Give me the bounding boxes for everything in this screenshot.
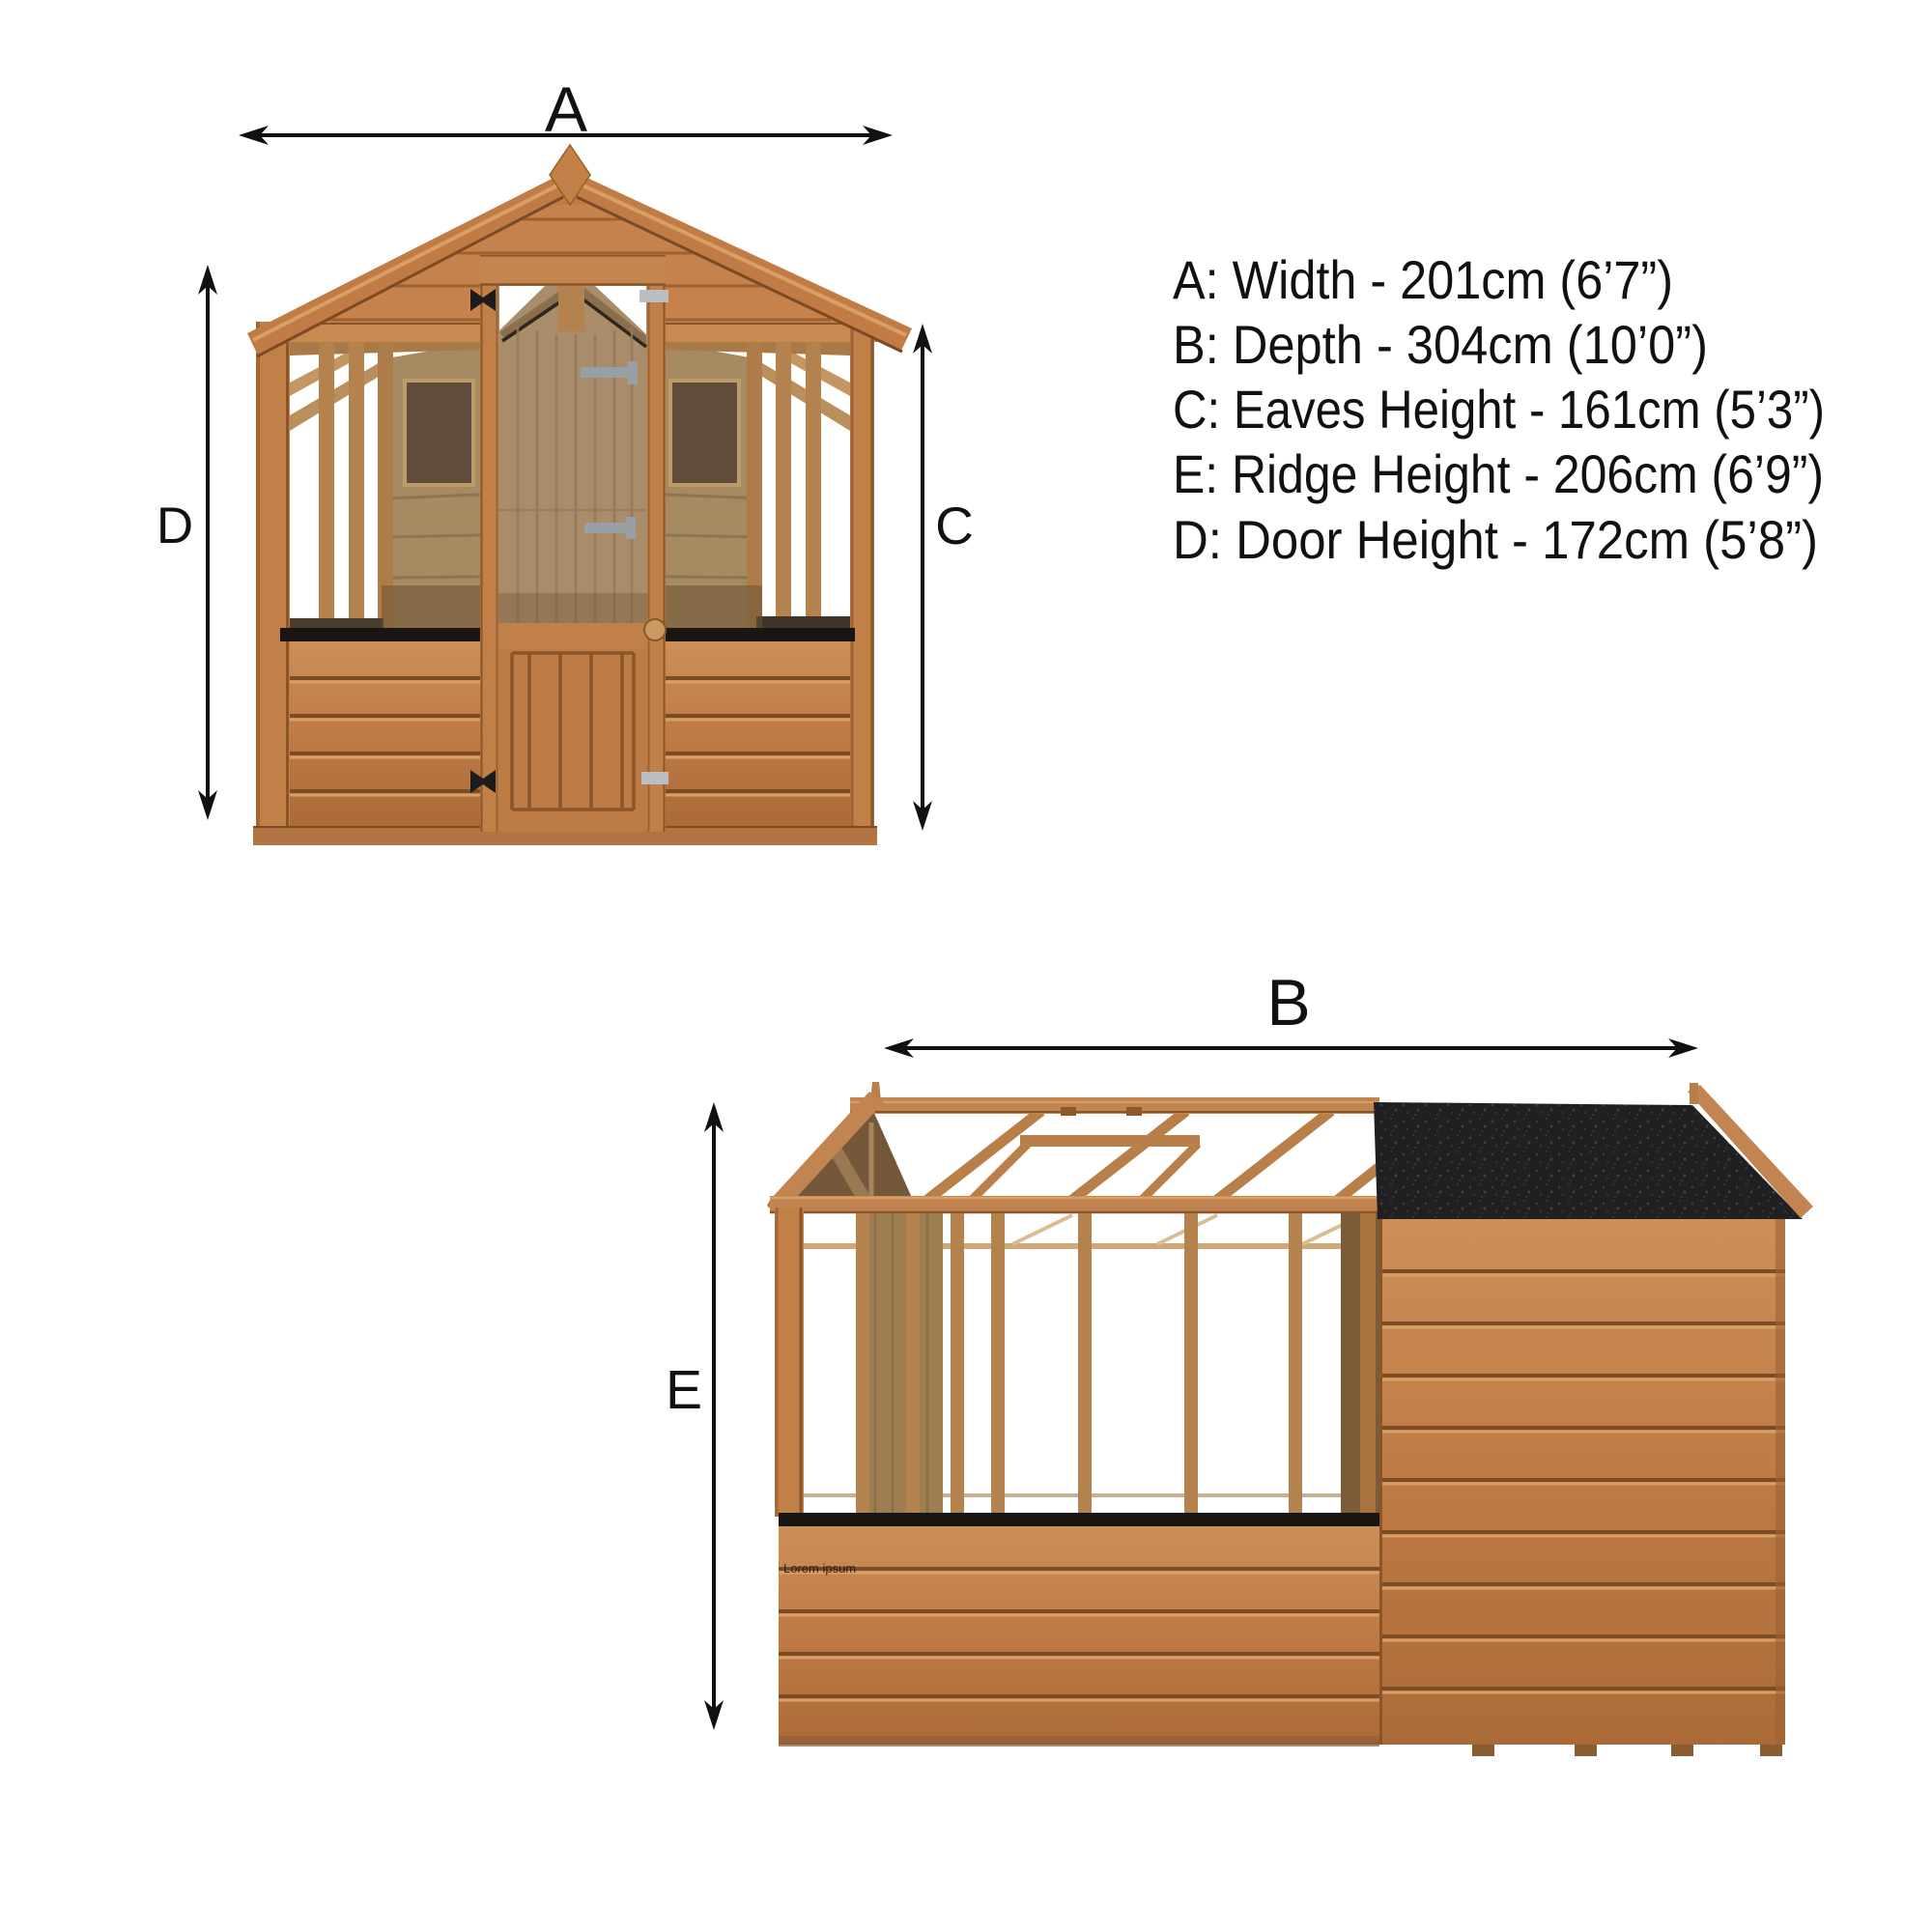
svg-text:D: D [156,497,193,554]
svg-text:A: A [545,73,587,145]
svg-text:C: C [935,496,974,555]
svg-text:B: Depth - 304cm (10’0”): B: Depth - 304cm (10’0”) [1173,314,1708,375]
svg-text:D: Door Height - 172cm (5’8”): D: Door Height - 172cm (5’8”) [1173,509,1818,570]
svg-text:B: B [1266,966,1310,1039]
svg-text:C: Eaves Height - 161cm (5’3”): C: Eaves Height - 161cm (5’3”) [1173,379,1825,440]
svg-text:Lorem ipsum: Lorem ipsum [783,1561,856,1576]
svg-text:E: Ridge Height - 206cm (6’9”): E: Ridge Height - 206cm (6’9”) [1173,443,1824,504]
svg-text:E: E [666,1359,702,1421]
svg-text:A: Width - 201cm (6’7”): A: Width - 201cm (6’7”) [1173,249,1673,310]
